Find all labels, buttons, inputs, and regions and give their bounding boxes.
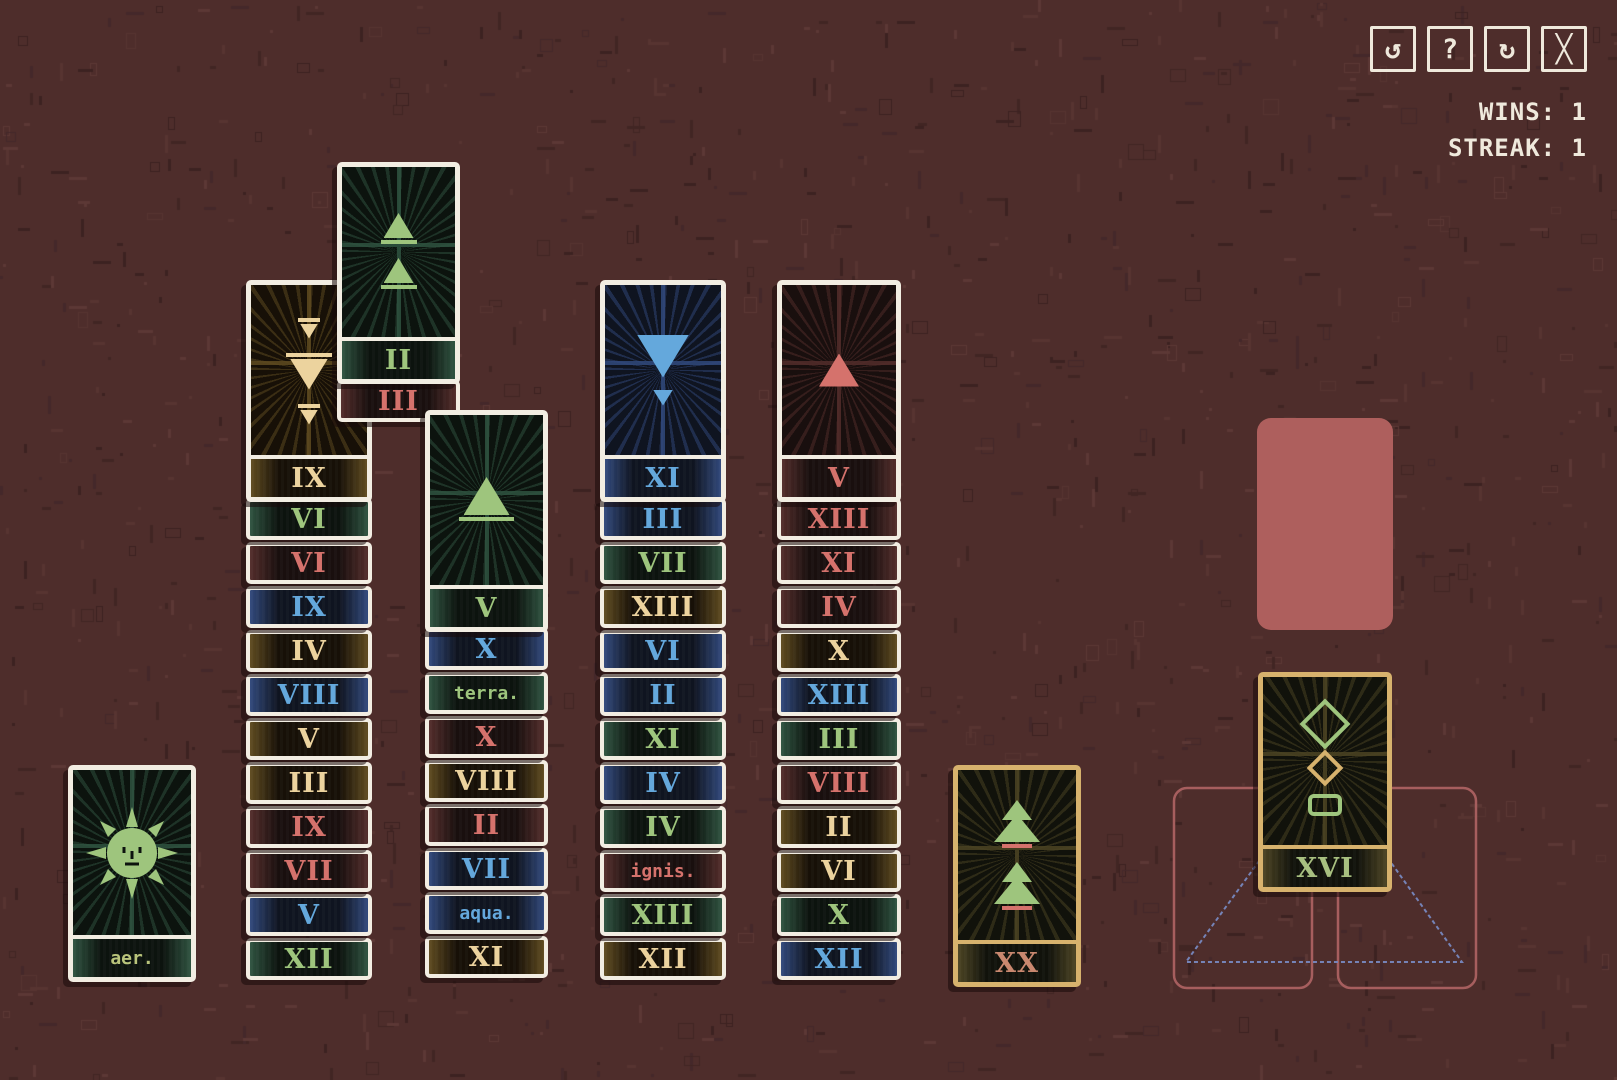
tableau-card[interactable]: IV — [777, 586, 901, 628]
tableau-card[interactable]: VI — [246, 498, 372, 540]
tableau-card[interactable]: VI — [246, 542, 372, 584]
air-suit-icon — [298, 316, 320, 339]
arcana-card-xx[interactable]: XX — [953, 765, 1081, 987]
tableau-card[interactable]: VI — [777, 850, 901, 892]
tableau-card[interactable]: V — [246, 718, 372, 760]
tableau-card[interactable]: X — [425, 716, 548, 758]
sun-face-icon — [80, 801, 184, 905]
restart-button[interactable]: ↻ — [1484, 26, 1530, 72]
tableau-card[interactable]: XIII — [777, 674, 901, 716]
tableau-card[interactable]: X — [777, 894, 901, 936]
restart-icon: ↻ — [1499, 34, 1515, 65]
lantern-icon — [1307, 750, 1344, 787]
air-suit-icon — [286, 351, 332, 390]
tableau-card[interactable]: IV — [246, 630, 372, 672]
card-numeral: II — [473, 812, 500, 839]
streak-counter: STREAK: 1 — [1448, 134, 1587, 162]
tableau-card[interactable]: V — [425, 410, 548, 632]
card-numeral: XII — [814, 946, 863, 973]
tableau-card[interactable]: VIII — [246, 674, 372, 716]
card-numeral: VII — [462, 856, 511, 883]
tableau-card[interactable]: XII — [777, 938, 901, 980]
card-numeral: XI — [645, 465, 681, 492]
question-icon: ? — [1442, 34, 1458, 65]
undo-button[interactable]: ↺ — [1370, 26, 1416, 72]
card-numeral: VII — [638, 550, 687, 577]
tableau-card[interactable]: XII — [600, 938, 726, 980]
card-numeral: X — [828, 902, 850, 929]
tableau-card[interactable]: VI — [600, 630, 726, 672]
card-numeral: IV — [645, 814, 681, 841]
card-numeral: XIII — [632, 902, 695, 929]
air-suit-icon — [298, 402, 320, 425]
game-viewport: ↺ ? ↻ ╳ WINS: 1 STREAK: 1 — [0, 0, 1617, 1080]
card-numeral: VIII — [278, 682, 341, 709]
tableau-card[interactable]: aqua. — [425, 892, 548, 934]
card-numeral: X — [476, 636, 498, 663]
lantern-icon — [1308, 794, 1342, 816]
tableau-card[interactable]: ignis. — [600, 850, 726, 892]
card-numeral: II — [385, 347, 412, 374]
tableau-card[interactable]: II — [425, 804, 548, 846]
card-numeral: V — [298, 902, 320, 929]
card-numeral: VI — [291, 506, 327, 533]
foundation-card-aer[interactable]: aer. — [68, 765, 196, 982]
tableau-card[interactable]: XII — [246, 938, 372, 980]
card-numeral: XI — [821, 550, 857, 577]
tableau-card[interactable]: IV — [600, 762, 726, 804]
card-numeral: X — [828, 638, 850, 665]
tableau-card[interactable]: XI — [777, 542, 901, 584]
card-numeral: IV — [291, 638, 327, 665]
card-numeral: XI — [645, 726, 681, 753]
tableau-card[interactable]: III — [600, 498, 726, 540]
card-numeral: X — [476, 724, 498, 751]
tableau-card[interactable]: V — [246, 894, 372, 936]
card-latin-label: aqua. — [459, 903, 513, 924]
fire-suit-icon — [819, 354, 859, 387]
tableau-card[interactable]: XI — [425, 936, 548, 978]
card-numeral: XIII — [808, 506, 871, 533]
card-numeral: VIII — [808, 770, 871, 797]
tableau-card[interactable]: XI — [600, 280, 726, 502]
water-suit-icon — [653, 390, 673, 406]
card-numeral: VI — [821, 858, 857, 885]
tableau-card[interactable]: VII — [246, 850, 372, 892]
close-icon: ╳ — [1556, 34, 1572, 65]
tree-icon — [994, 800, 1040, 848]
tableau-card[interactable]: XI — [600, 718, 726, 760]
card-numeral: II — [825, 814, 852, 841]
card-numeral: III — [378, 388, 419, 415]
card-numeral: V — [828, 465, 850, 492]
tableau-card[interactable]: II — [600, 674, 726, 716]
card-numeral: IX — [291, 814, 327, 841]
free-cell-empty[interactable] — [1257, 418, 1393, 630]
close-button[interactable]: ╳ — [1541, 26, 1587, 72]
game-stage: ↺ ? ↻ ╳ WINS: 1 STREAK: 1 — [0, 0, 1617, 1080]
card-numeral: II — [649, 682, 676, 709]
earth-suit-icon — [381, 213, 417, 246]
arcana-card-xvi[interactable]: XVI — [1258, 672, 1392, 892]
tableau-card[interactable]: X — [777, 630, 901, 672]
tableau-card[interactable]: IX — [246, 806, 372, 848]
card-numeral: XI — [469, 944, 505, 971]
card-numeral: IV — [821, 594, 857, 621]
card-latin-label: aer. — [110, 948, 153, 969]
tableau-card[interactable]: terra. — [425, 672, 548, 714]
card-latin-label: terra. — [454, 683, 519, 704]
tableau-card[interactable]: XIII — [600, 894, 726, 936]
card-numeral: XIII — [808, 682, 871, 709]
card-numeral: VIII — [455, 768, 518, 795]
card-numeral: XX — [995, 950, 1039, 977]
undo-icon: ↺ — [1385, 34, 1401, 65]
card-numeral: III — [289, 770, 330, 797]
tableau-card[interactable]: III — [246, 762, 372, 804]
tableau-card[interactable]: VII — [425, 848, 548, 890]
tableau-card[interactable]: VIII — [777, 762, 901, 804]
card-numeral: V — [476, 595, 498, 622]
tableau-card[interactable]: IX — [246, 586, 372, 628]
tableau-card[interactable]: II — [337, 162, 460, 384]
tableau-card[interactable]: IV — [600, 806, 726, 848]
card-numeral: VI — [645, 638, 681, 665]
card-numeral: VII — [284, 858, 333, 885]
tableau-card[interactable]: VII — [600, 542, 726, 584]
card-numeral: VI — [291, 550, 327, 577]
water-suit-icon — [637, 335, 689, 378]
card-numeral: IX — [291, 465, 327, 492]
tableau-card[interactable]: XIII — [600, 586, 726, 628]
tableau-card[interactable]: XIII — [777, 498, 901, 540]
earth-suit-icon — [459, 477, 514, 523]
tableau-card[interactable]: X — [425, 628, 548, 670]
lantern-icon — [1300, 699, 1351, 750]
card-numeral: V — [298, 726, 320, 753]
card-numeral: XVI — [1296, 855, 1354, 882]
card-latin-label: ignis. — [630, 861, 695, 882]
card-numeral: IX — [291, 594, 327, 621]
tree-icon — [994, 862, 1040, 910]
tableau-card[interactable]: V — [777, 280, 901, 502]
help-button[interactable]: ? — [1427, 26, 1473, 72]
card-numeral: XII — [284, 946, 333, 973]
card-numeral: III — [819, 726, 860, 753]
card-numeral: III — [643, 506, 684, 533]
card-numeral: XII — [638, 946, 687, 973]
card-numeral: IV — [645, 770, 681, 797]
toolbar: ↺ ? ↻ ╳ — [1370, 26, 1587, 72]
earth-suit-icon — [381, 258, 417, 291]
wins-counter: WINS: 1 — [1479, 98, 1587, 126]
tableau-card[interactable]: II — [777, 806, 901, 848]
card-numeral: XIII — [632, 594, 695, 621]
tableau-card[interactable]: III — [777, 718, 901, 760]
tableau-card[interactable]: VIII — [425, 760, 548, 802]
